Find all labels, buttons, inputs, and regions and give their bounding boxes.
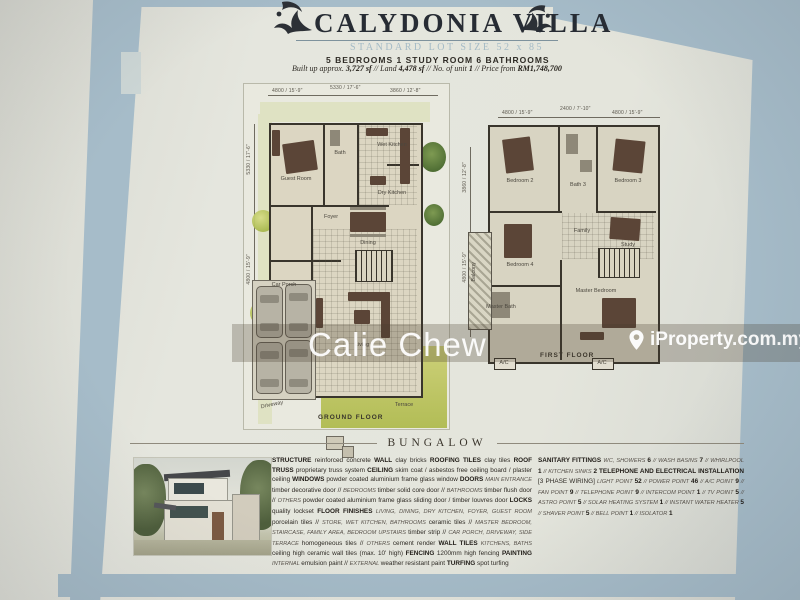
room-label-dining: Dining: [350, 240, 386, 246]
dim-label: 3860 / 12'-8": [462, 162, 468, 193]
tree-left: [133, 464, 166, 536]
section-divider: BUNGALOW: [130, 437, 744, 449]
house-upper-window: [174, 483, 204, 494]
bungalow-rendering: [133, 457, 272, 556]
dim-label: 3860 / 12'-8": [390, 88, 421, 94]
details-line: Built up approx. 3,727 sf // Land 4,478 …: [292, 64, 562, 73]
wardrobe: [272, 130, 280, 156]
room-label-bedroom-3: Bedroom 3: [606, 178, 650, 184]
room-label-bath-3: Bath 3: [564, 182, 592, 188]
dining-chairs: [350, 234, 386, 237]
page-title: CALYDONIA VILLA: [314, 8, 613, 39]
pin-icon: [628, 329, 645, 351]
kitchen-counter: [366, 128, 388, 136]
flourish-left-icon: [272, 0, 314, 43]
bath-fixtures: [566, 134, 578, 154]
palm-tree: [420, 142, 446, 172]
room-label-study: Study: [614, 242, 642, 248]
dim-label: 2400 / 7'-10": [560, 106, 591, 112]
lot-size-subtitle: STANDARD LOT SIZE 52 x 85: [350, 42, 544, 53]
bath-fixtures: [580, 160, 592, 172]
dim-label: 5330 / 17'-6": [330, 85, 361, 91]
bath-fixtures: [330, 130, 340, 146]
interior-wall: [488, 285, 562, 287]
room-label-dry-kitchen: Dry Kitchen: [372, 190, 412, 196]
staircase: [598, 248, 640, 278]
room-label-master-bedroom: Master Bedroom: [568, 288, 624, 294]
bed: [502, 136, 534, 173]
room-label-foyer: Foyer: [318, 214, 344, 220]
section-heading: BUNGALOW: [387, 437, 486, 449]
driveway-foreground: [134, 540, 271, 555]
room-label-bedroom-2: Bedroom 2: [498, 178, 542, 184]
interior-wall: [558, 125, 560, 213]
interior-wall: [488, 211, 562, 213]
desk: [609, 217, 640, 241]
dining-table: [350, 212, 386, 232]
agent-watermark: Calie Chew: [308, 326, 487, 364]
portal-watermark: iProperty.com.my: [628, 329, 800, 351]
room-label-balcony: Balcony: [471, 262, 477, 282]
dim-label: 4800 / 15'-9": [612, 110, 643, 116]
interior-wall: [323, 123, 325, 207]
specs-right-column: SANITARY FITTINGS WC, SHOWERS 6 // WASH …: [538, 456, 744, 566]
divider-line: [130, 443, 377, 444]
specs-left-column: STRUCTURE reinforced concrete WALL clay …: [272, 456, 532, 566]
dim-label: 4800 / 15'-9": [502, 110, 533, 116]
staircase: [355, 250, 393, 282]
bed: [612, 139, 645, 174]
room-label-bath: Bath: [328, 150, 352, 156]
room-label-car-porch: Car Porch: [262, 282, 306, 288]
room-label-master-bath: Master Bath: [486, 304, 516, 310]
ground-floor-plan: 4800 / 15'-9" 5330 / 17'-6" 3860 / 12'-8…: [243, 83, 450, 430]
frame-bottom-band: [58, 574, 800, 597]
brochure-photo: CALYDONIA VILLA STANDARD LOT SIZE 52 x 8…: [0, 0, 800, 600]
room-label-bedroom-4: Bedroom 4: [498, 262, 542, 268]
room-label-wet-kitchen: Wet Kitchen: [372, 142, 412, 148]
dim-line: [498, 117, 660, 118]
dim-line: [268, 95, 438, 96]
interior-wall: [596, 125, 598, 213]
header: CALYDONIA VILLA STANDARD LOT SIZE 52 x 8…: [240, 0, 580, 78]
dining-chairs: [350, 207, 386, 210]
divider-line: [497, 443, 744, 444]
portal-watermark-text: iProperty.com.my: [650, 329, 800, 351]
title-rule: [296, 40, 558, 41]
garden-strip-top: [260, 102, 430, 122]
house-brick-column: [212, 512, 224, 540]
room-label-terrace: Terrace: [384, 402, 424, 408]
dim-label: 4800 / 15'-9": [272, 88, 303, 94]
bed: [504, 224, 532, 258]
kitchen-counter: [400, 128, 410, 184]
ground-floor-caption: GROUND FLOOR: [318, 414, 383, 421]
house-right-wing: [232, 494, 260, 542]
room-label-family: Family: [566, 228, 598, 234]
palm-tree: [424, 204, 444, 226]
guest-bed: [282, 140, 318, 174]
kitchen-island: [370, 176, 386, 185]
coffee-table: [354, 310, 370, 324]
frame-left-notch: [121, 52, 141, 94]
room-label-guest-room: Guest Room: [274, 176, 318, 182]
dim-label: 5330 / 17'-6": [246, 144, 252, 175]
